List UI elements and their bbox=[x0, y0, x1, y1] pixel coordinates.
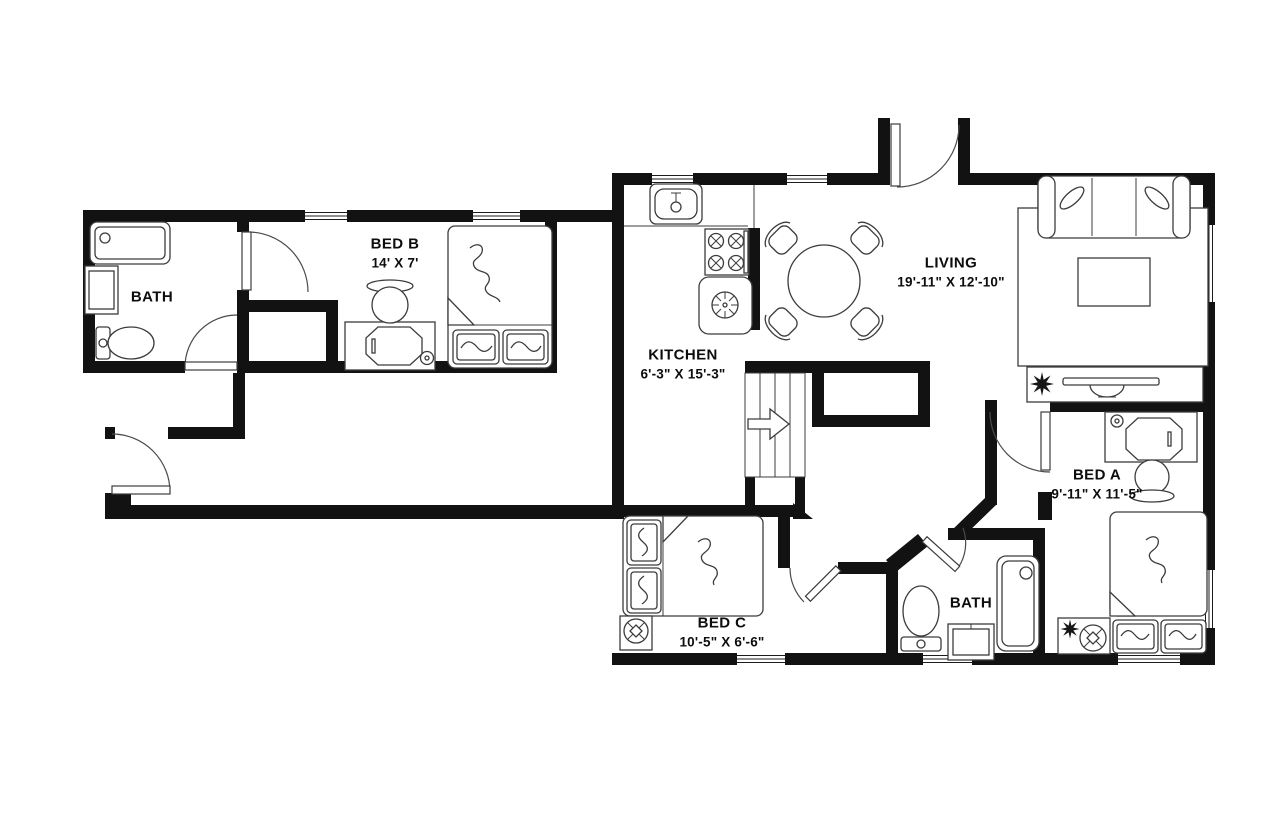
kitchen-sink-icon bbox=[650, 184, 702, 224]
stairs-up-arrow-icon bbox=[748, 409, 789, 439]
bathtub-icon bbox=[997, 556, 1039, 651]
window-icon bbox=[1118, 653, 1180, 665]
bed-icon bbox=[1110, 512, 1207, 653]
window-icon bbox=[737, 653, 785, 665]
toilet-icon bbox=[901, 586, 941, 651]
plant-icon bbox=[1060, 619, 1079, 638]
dining-table-icon bbox=[788, 245, 860, 317]
refrigerator-icon bbox=[699, 277, 752, 334]
window-icon bbox=[787, 173, 827, 185]
entry-door-icon bbox=[891, 124, 959, 187]
nightstand-icon bbox=[1058, 618, 1110, 654]
vanity-icon bbox=[85, 266, 118, 314]
toilet-icon bbox=[96, 327, 154, 359]
corridor-door-icon bbox=[112, 434, 170, 494]
coffee-table-icon bbox=[1078, 258, 1150, 306]
sofa-icon bbox=[1038, 176, 1190, 238]
dining-chair-icon bbox=[845, 302, 888, 345]
stove-icon bbox=[705, 229, 749, 275]
lamp-icon bbox=[624, 619, 648, 643]
bed-a-door-icon bbox=[990, 412, 1050, 472]
bed-b-furniture bbox=[345, 226, 552, 370]
bed-icon bbox=[623, 516, 763, 616]
bathtub-icon bbox=[90, 222, 170, 264]
bed-c-door-icon bbox=[790, 566, 841, 602]
window-icon bbox=[473, 210, 520, 222]
dining-chair-icon bbox=[760, 302, 803, 345]
dining-chair-icon bbox=[760, 217, 803, 260]
desk-icon bbox=[345, 322, 435, 370]
desk-chair-icon bbox=[367, 280, 413, 323]
lamp-icon bbox=[1080, 625, 1106, 651]
desk-chair-icon bbox=[1130, 460, 1174, 502]
dining-chair-icon bbox=[845, 217, 888, 260]
stairs bbox=[745, 373, 805, 477]
window-icon bbox=[652, 173, 693, 185]
floor-plan-svg bbox=[0, 0, 1280, 828]
bed-b-door-icon bbox=[242, 232, 308, 292]
bed-a-furniture bbox=[1058, 412, 1207, 654]
bath-left-fixtures bbox=[85, 222, 170, 359]
bed-icon bbox=[448, 226, 552, 368]
bath-right-fixtures bbox=[901, 556, 1039, 660]
tv-console-icon bbox=[1027, 367, 1203, 402]
nightstand-icon bbox=[620, 616, 652, 650]
floor-plan: BATH BED B 14' X 7' KITCHEN 6'-3" X 15'-… bbox=[0, 0, 1280, 828]
living-furniture bbox=[1018, 176, 1208, 402]
vanity-icon bbox=[948, 624, 994, 660]
bed-c-furniture bbox=[620, 516, 763, 650]
desk-icon bbox=[1105, 412, 1197, 462]
plant-icon bbox=[1030, 372, 1054, 396]
bath-left-door-icon bbox=[185, 315, 237, 370]
kitchen-fixtures bbox=[624, 184, 754, 334]
dining-set bbox=[760, 217, 888, 345]
window-icon bbox=[305, 210, 347, 222]
